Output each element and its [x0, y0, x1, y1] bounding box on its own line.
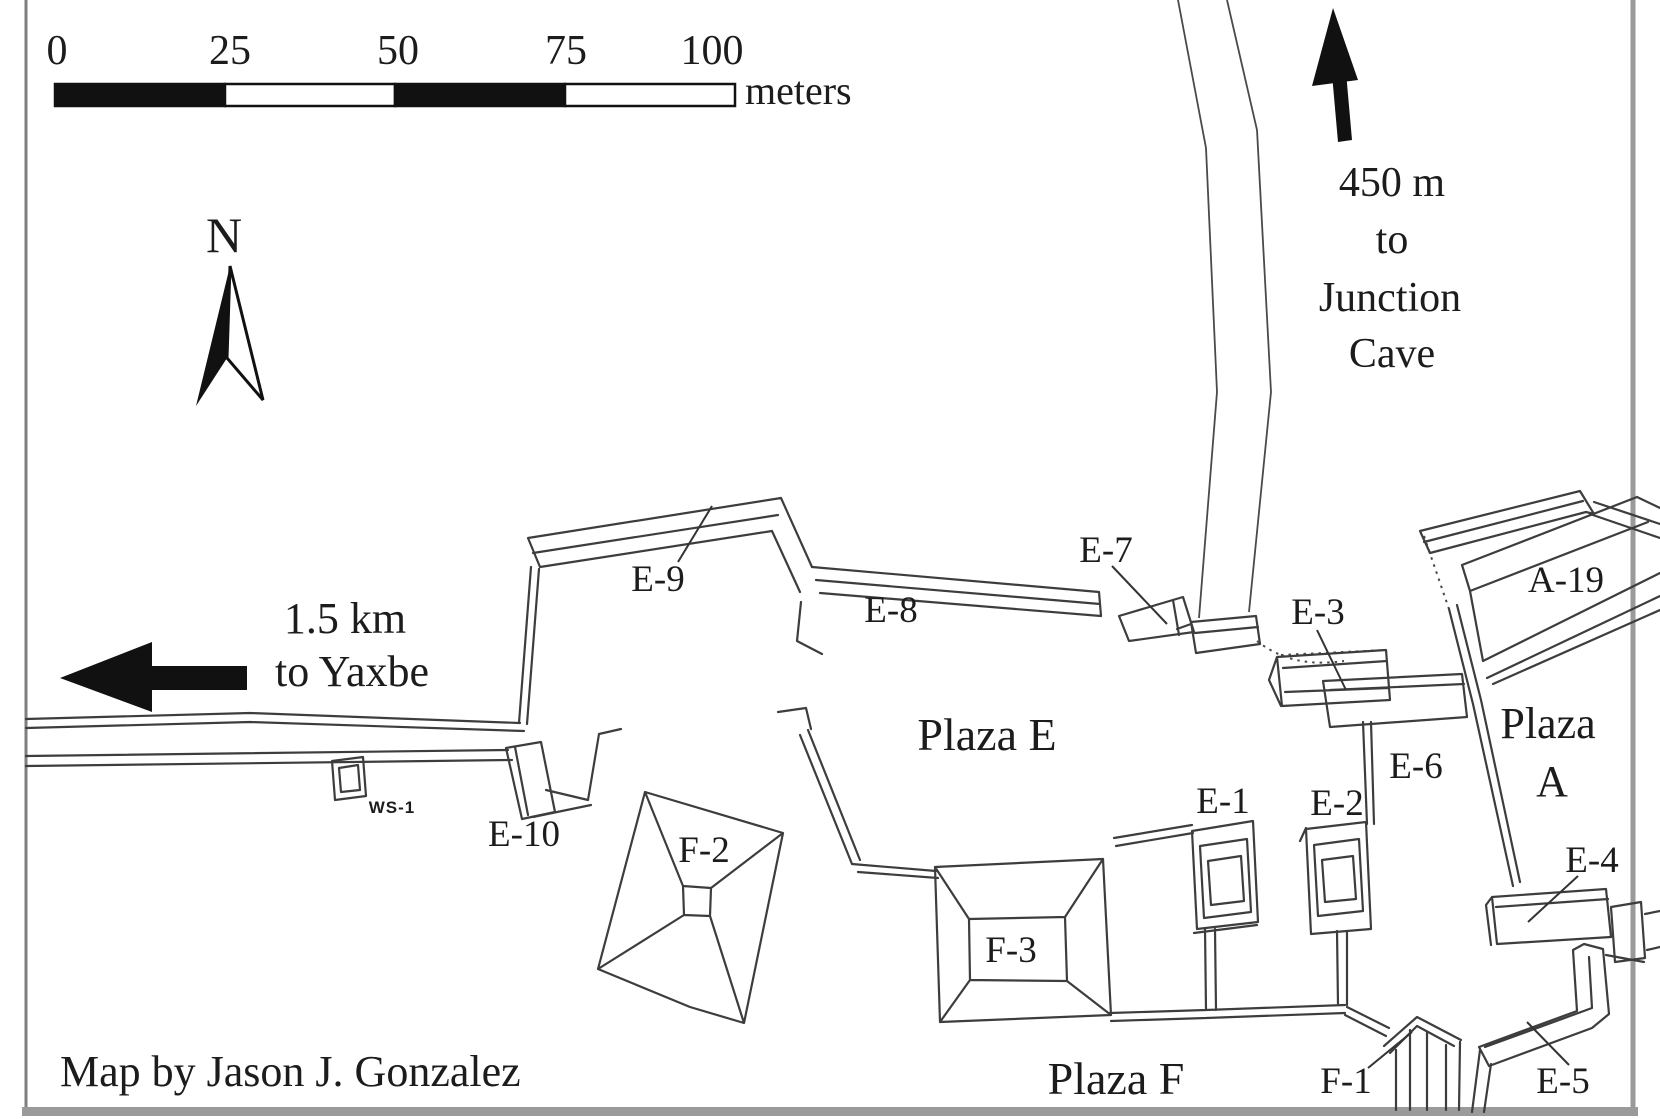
structure-south-wall: [1110, 928, 1347, 1021]
yaxbe-destination: to Yaxbe: [275, 647, 429, 696]
label-e10: E-10: [488, 814, 560, 855]
yaxbe-distance: 1.5 km: [284, 594, 406, 643]
west-arrow-icon: [60, 642, 247, 712]
structure-wall-e3-e2: [1363, 722, 1374, 824]
scale-tick: 0: [47, 28, 68, 74]
north-arrow-shaft: [1332, 72, 1352, 142]
structure-west-wall: [519, 567, 539, 724]
map-credit: Map by Jason J. Gonzalez: [60, 1047, 521, 1096]
scale-bar: 0 25 50 75 100 meters: [47, 28, 852, 113]
structure-e7: [1119, 597, 1194, 641]
leader-e5: [1527, 1022, 1569, 1065]
cave-to: to: [1376, 217, 1409, 263]
scale-segment: [565, 84, 735, 106]
scale-tick: 50: [377, 28, 419, 74]
scale-segment: [55, 84, 225, 106]
scale-segment: [395, 84, 565, 106]
label-e4: E-4: [1565, 840, 1618, 881]
label-e6: E-6: [1389, 746, 1442, 787]
label-f1: F-1: [1320, 1061, 1371, 1102]
structure-e3: [1269, 650, 1467, 727]
structure-f2: [598, 792, 783, 1023]
leader-e4: [1528, 876, 1578, 922]
structure-ws1: [332, 757, 366, 800]
label-leader-lines: [678, 506, 1578, 1068]
label-f3: F-3: [985, 930, 1036, 971]
scale-tick: 25: [209, 28, 251, 74]
north-compass-icon: N: [196, 207, 263, 406]
plaza-f-label: Plaza F: [1048, 1053, 1185, 1104]
label-ws1: WS-1: [369, 798, 416, 817]
label-e7: E-7: [1079, 530, 1132, 571]
structure-cave-road: [1178, 0, 1271, 618]
structure-west-road: [26, 713, 524, 766]
label-e2: E-2: [1310, 783, 1363, 824]
structure-labels: E-9 E-8 E-7 E-3 A-19 E-6 E-1 E-2 E-4 E-5…: [369, 530, 1619, 1102]
compass-arrow-dark-half: [196, 266, 230, 406]
scale-tick: 100: [681, 28, 744, 74]
label-e8: E-8: [864, 590, 917, 631]
leader-f1: [1368, 1032, 1412, 1068]
yaxbe-direction: 1.5 km to Yaxbe: [60, 594, 429, 712]
archaeological-site-map: 0 25 50 75 100 meters N 1.5 km to Yaxbe …: [0, 0, 1660, 1119]
plaza-a-label-line2: A: [1536, 757, 1568, 806]
label-a19: A-19: [1528, 560, 1604, 601]
map-drawing: 0 25 50 75 100 meters N 1.5 km to Yaxbe …: [0, 0, 1660, 1119]
scale-tick: 75: [545, 28, 587, 74]
structure-road-terminus: [1177, 616, 1260, 653]
north-label: N: [206, 207, 242, 263]
plaza-a-label-line1: Plaza: [1500, 699, 1595, 748]
label-f2: F-2: [678, 830, 729, 871]
compass-arrow-light-half: [227, 266, 263, 400]
label-e5: E-5: [1536, 1061, 1589, 1102]
structure-nw-range: [1420, 491, 1660, 553]
structure-hook-wall: [778, 708, 938, 878]
scale-segment: [225, 84, 395, 106]
cave-distance: 450 m: [1339, 160, 1446, 206]
scale-unit: meters: [745, 68, 852, 113]
structure-e1: [1114, 821, 1258, 933]
label-e9: E-9: [631, 559, 684, 600]
cave-junction: Junction: [1319, 275, 1461, 321]
structure-e10: [506, 729, 621, 819]
label-e3: E-3: [1291, 592, 1344, 633]
structure-dotted-wall: [1257, 536, 1449, 663]
plaza-e-label: Plaza E: [917, 709, 1056, 760]
cave-direction: 450 m to Junction Cave: [1312, 8, 1461, 377]
label-e1: E-1: [1196, 781, 1249, 822]
structure-e2: [1300, 822, 1371, 934]
cave-name: Cave: [1349, 331, 1435, 377]
structure-e8: [797, 567, 1101, 654]
